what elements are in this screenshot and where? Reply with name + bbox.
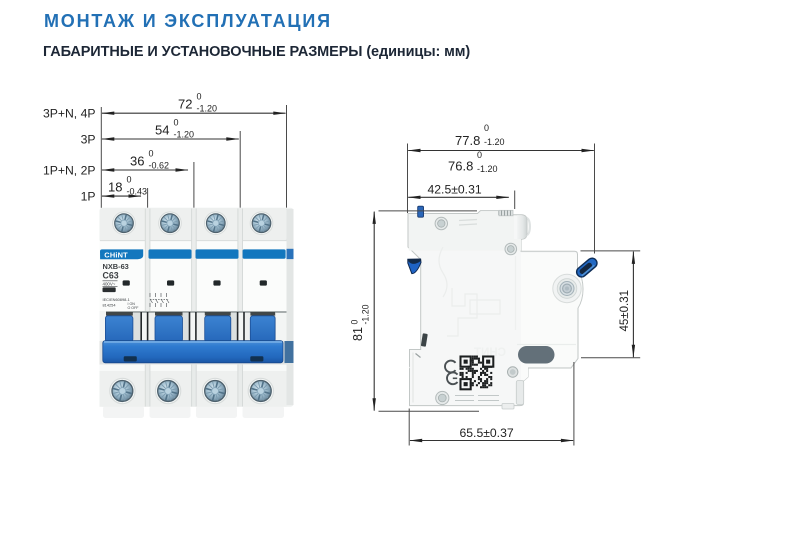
svg-text:36: 36 xyxy=(130,154,144,169)
svg-text:0: 0 xyxy=(484,123,489,133)
svg-text:-0.43: -0.43 xyxy=(127,187,148,197)
svg-text:NXB-63: NXB-63 xyxy=(103,262,129,271)
svg-text:-1.20: -1.20 xyxy=(361,304,371,324)
svg-text:0: 0 xyxy=(174,118,179,128)
svg-text:18: 18 xyxy=(108,180,122,195)
svg-text:54: 54 xyxy=(155,123,169,138)
svg-text:65.5±0.37: 65.5±0.37 xyxy=(460,426,514,440)
svg-text:0: 0 xyxy=(350,320,360,325)
svg-text:-1.20: -1.20 xyxy=(477,164,498,174)
svg-text:-1.20: -1.20 xyxy=(197,104,218,114)
svg-text:42.5±0.31: 42.5±0.31 xyxy=(428,183,482,197)
svg-text:-0.62: -0.62 xyxy=(149,161,170,171)
svg-text:0: 0 xyxy=(197,92,202,102)
svg-text:400V~: 400V~ xyxy=(103,281,116,286)
svg-text:0: 0 xyxy=(127,175,132,185)
svg-text:1P+N, 2P: 1P+N, 2P xyxy=(43,163,96,177)
svg-text:-1.20: -1.20 xyxy=(174,130,195,140)
svg-text:0: 0 xyxy=(477,150,482,160)
svg-text:72: 72 xyxy=(178,97,192,112)
svg-text:76.8: 76.8 xyxy=(448,159,473,174)
svg-text:45±0.31: 45±0.31 xyxy=(619,290,631,332)
svg-text:3P: 3P xyxy=(81,132,96,146)
svg-text:-1.20: -1.20 xyxy=(484,137,505,147)
svg-text:81: 81 xyxy=(351,327,365,341)
svg-text:O OFF: O OFF xyxy=(128,306,140,310)
svg-text:77.8: 77.8 xyxy=(455,133,480,148)
svg-text:IEC/EN60898-1: IEC/EN60898-1 xyxy=(103,297,130,302)
svg-text:814254: 814254 xyxy=(103,302,117,307)
svg-text:CHiNT: CHiNT xyxy=(104,251,128,260)
svg-text:C63: C63 xyxy=(103,271,119,281)
svg-text:0: 0 xyxy=(149,149,154,159)
svg-text:3P+N, 4P: 3P+N, 4P xyxy=(43,107,96,121)
svg-text:1P: 1P xyxy=(81,190,96,204)
